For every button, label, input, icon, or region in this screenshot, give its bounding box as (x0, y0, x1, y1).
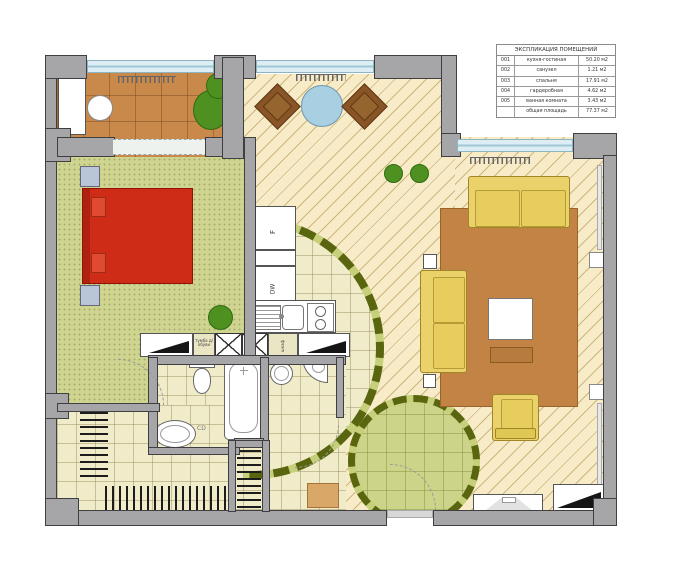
room-name: кухня-гостиная (515, 56, 579, 65)
drain-cross-icon (240, 367, 248, 375)
fridge-label: F (251, 230, 295, 234)
wall (336, 357, 344, 418)
bath-marker-label: CD (197, 425, 206, 432)
legend-row: 003 спальня 17.91 м2 (497, 77, 615, 87)
legend-title: ЭКСПЛИКАЦИЯ ПОМЕЩЕНИЙ (497, 45, 615, 56)
wall (45, 510, 387, 526)
console-table (307, 483, 339, 508)
room-area: 17.91 м2 (579, 77, 615, 86)
kitchen-cabinet (250, 250, 296, 266)
tv-stand (298, 333, 350, 357)
window (457, 139, 573, 152)
room-area: 1.21 м2 (579, 66, 615, 75)
bench (490, 347, 533, 363)
dishwasher-label: DW (255, 284, 291, 295)
door-arc (118, 359, 164, 405)
wall (433, 510, 617, 526)
sofa (468, 176, 570, 228)
wardrobe-label: шкаф (271, 340, 295, 352)
legend-row: 005 ванная комната 3.43 м2 (497, 97, 615, 107)
floor-plan: тумба д/обуви шкаф F DW (0, 0, 700, 574)
wardrobe-x-box (215, 333, 242, 357)
fridge-unit: F (250, 206, 296, 250)
burner-icon (315, 319, 326, 330)
side-table (423, 254, 437, 269)
washbasin-icon (154, 420, 196, 448)
wall (148, 447, 240, 455)
dining-table (301, 85, 343, 127)
side-table (423, 374, 436, 388)
tv-icon (149, 341, 189, 353)
curtain-icon (597, 403, 602, 488)
door-arc (295, 424, 339, 468)
toilet-bowl-icon (193, 368, 211, 394)
room-number: 004 (497, 87, 515, 96)
wall (148, 355, 346, 365)
wall (244, 137, 256, 365)
armchair (492, 394, 539, 441)
tv-icon (306, 341, 346, 353)
curtain-icon (597, 165, 602, 250)
plant-icon (208, 305, 233, 330)
kitchen-counter (250, 300, 336, 333)
room-name: гардеробная (515, 87, 579, 96)
legend-row: 001 кухня-гостиная 50.20 м2 (497, 56, 615, 66)
room-number (497, 107, 515, 116)
wall (45, 498, 79, 526)
radiator-icon (296, 74, 346, 81)
balcony-opening (113, 139, 207, 155)
bathtub-icon (224, 356, 264, 440)
room-number: 005 (497, 97, 515, 106)
radiator-icon (118, 76, 176, 83)
wall (262, 440, 270, 512)
coffee-table (488, 298, 533, 340)
wall (260, 357, 269, 442)
nightstand (80, 166, 100, 187)
faucet-icon (279, 314, 284, 319)
shoe-cabinet: тумба д/обуви (193, 333, 215, 357)
entrance-opening (387, 510, 433, 518)
room-area: 77.37 м2 (579, 107, 615, 116)
pillow (91, 253, 106, 273)
window (256, 60, 374, 73)
sink-basin-icon (282, 305, 304, 330)
radiator-icon (470, 157, 530, 164)
nightstand (80, 285, 100, 306)
sink-drainer-icon (255, 305, 281, 330)
room-area: 4.62 м2 (579, 87, 615, 96)
washing-machine-icon (270, 362, 293, 385)
legend-row: общая площадь 77.37 м2 (497, 107, 615, 116)
legend-table: ЭКСПЛИКАЦИЯ ПОМЕЩЕНИЙ 001 кухня-гостиная… (496, 44, 616, 118)
room-number: 003 (497, 77, 515, 86)
room-name: ванная комната (515, 97, 579, 106)
plant-icon (384, 164, 403, 183)
legend-row: 002 санузел 1.21 м2 (497, 66, 615, 76)
headboard (83, 189, 90, 283)
balcony-table (87, 95, 113, 121)
wall (45, 55, 57, 525)
wall (222, 57, 244, 159)
bed (82, 188, 193, 284)
room-number: 001 (497, 56, 515, 65)
room-area: 3.43 м2 (579, 97, 615, 106)
plant-icon (410, 164, 429, 183)
shoe-cabinet-label: тумба д/обуви (195, 338, 213, 347)
wall (603, 155, 617, 525)
hanger-rail-icon (80, 412, 108, 482)
wall (57, 137, 115, 157)
pillow (91, 197, 106, 217)
room-name: общая площадь (515, 107, 579, 116)
wardrobe-cabinet: шкаф (268, 333, 298, 357)
room-name: санузел (515, 66, 579, 75)
window (87, 60, 214, 73)
cooktop-unit (307, 303, 334, 332)
room-name: спальня (515, 77, 579, 86)
dishwasher-unit: DW (250, 266, 296, 302)
wall (593, 498, 617, 526)
room-number: 002 (497, 66, 515, 75)
burner-icon (315, 306, 326, 317)
tv-stand (140, 333, 193, 357)
room-area: 50.20 м2 (579, 56, 615, 65)
wall (45, 55, 87, 79)
legend-row: 004 гардеробная 4.62 м2 (497, 87, 615, 97)
hanger-rail-icon (237, 450, 261, 510)
hanger-rail-icon (105, 486, 228, 510)
door-arc (390, 464, 436, 510)
balcony-cabinet (58, 75, 86, 135)
sofa (420, 270, 467, 373)
wall (228, 440, 236, 512)
